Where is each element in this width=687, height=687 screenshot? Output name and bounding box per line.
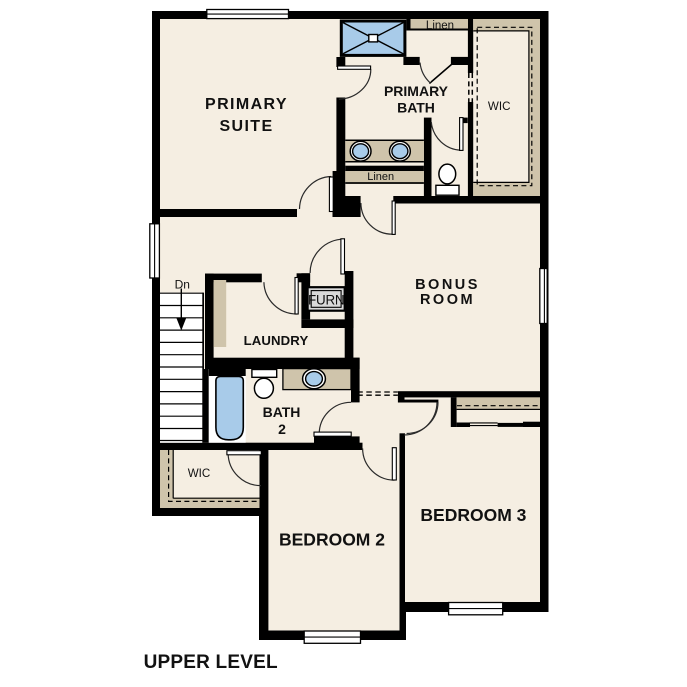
svg-text:Linen: Linen: [367, 171, 394, 183]
svg-text:SUITE: SUITE: [219, 118, 273, 135]
svg-text:BEDROOM 2: BEDROOM 2: [279, 530, 385, 550]
svg-text:PRIMARY: PRIMARY: [384, 83, 449, 99]
svg-text:BONUS: BONUS: [415, 277, 480, 293]
svg-text:WIC: WIC: [188, 467, 211, 480]
svg-text:FURN: FURN: [308, 292, 344, 307]
svg-text:BATH: BATH: [397, 99, 435, 115]
svg-text:BEDROOM 3: BEDROOM 3: [420, 505, 526, 525]
svg-text:BATH: BATH: [263, 404, 301, 420]
svg-text:ROOM: ROOM: [420, 292, 475, 308]
svg-text:UPPER LEVEL: UPPER LEVEL: [144, 652, 278, 673]
svg-text:LAUNDRY: LAUNDRY: [244, 333, 309, 348]
svg-text:Linen: Linen: [426, 20, 454, 32]
svg-text:WIC: WIC: [488, 100, 511, 113]
svg-text:PRIMARY: PRIMARY: [205, 96, 288, 113]
svg-text:Dn: Dn: [175, 278, 190, 292]
svg-text:2: 2: [278, 421, 286, 437]
